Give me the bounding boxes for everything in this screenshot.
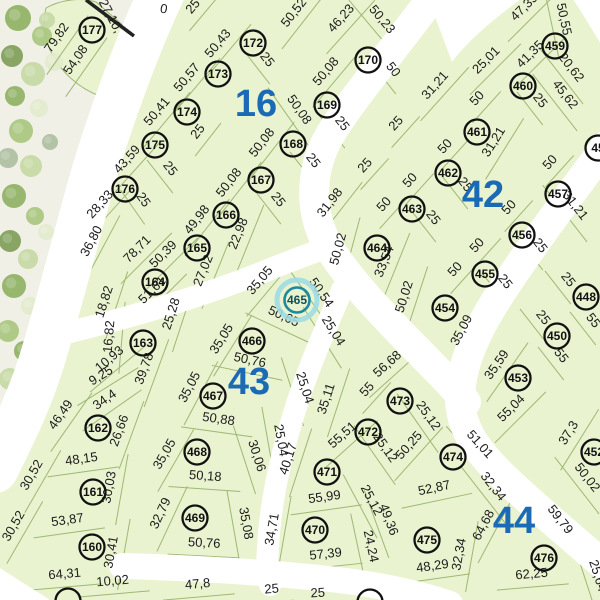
dimension-label: 50,18 [189,467,223,484]
parcel-number: 459 [545,39,565,53]
parcel-number: 462 [438,166,458,180]
tree-highlight-icon [41,14,48,21]
parcel-number: 163 [133,336,153,350]
tree-highlight-icon [4,48,14,58]
tree-highlight-icon [40,226,47,233]
dimension-label: 10,02 [96,572,130,590]
parcel-number: 468 [187,445,207,459]
tree-highlight-icon [1,151,10,160]
block-number-43: 43 [228,361,270,403]
parcel-number: 169 [317,98,337,112]
tree-highlight-icon [24,300,32,308]
tree-highlight-icon [6,188,17,199]
block-number-16: 16 [235,83,277,125]
parcel-number: 172 [243,36,263,50]
parcel-number: 165 [187,241,207,255]
tree-highlight-icon [9,9,21,21]
tree-highlight-icon [8,89,17,98]
parcel-number: 474 [443,450,463,464]
parcel-number: 453 [508,371,528,385]
parcel-number: 466 [242,334,262,348]
parcel-number: 450 [547,329,567,343]
tree-highlight-icon [2,233,12,243]
parcel-number: 469 [185,511,205,525]
tree-highlight-icon [44,136,51,143]
parcel-number: 471 [317,465,337,479]
parcel-number: 175 [145,138,165,152]
dimension-label: 25 [310,585,325,600]
parcel-number: 467 [203,389,223,403]
parcel-number: 45 [591,141,600,155]
parcel-number: 456 [512,228,532,242]
parcel-number: 176 [115,182,135,196]
block-number-42: 42 [462,174,504,216]
parcel-number: 166 [216,208,236,222]
tree-highlight-icon [13,123,24,134]
parcel-number: 160 [82,540,102,554]
dimension-label: 47,8 [184,575,211,592]
block-number-44: 44 [493,500,535,542]
parcel-number: 164 [145,275,165,289]
dimension-label: 50,76 [188,534,221,551]
dimension-label: 25 [264,580,280,596]
plat-map-viewport: 27,10,079,8254,082550,5246,2350,2350,432… [0,0,600,600]
tree-highlight-icon [6,278,17,289]
parcel-number: 168 [283,137,303,151]
tree-highlight-icon [2,371,12,381]
dimension-label: 62,25 [515,565,549,583]
parcel-number: 173 [208,67,228,81]
parcel-number: 174 [177,105,197,119]
tree-highlight-icon [0,323,10,333]
parcel-number: 461 [467,125,487,139]
parcel-number: 177 [82,23,102,37]
tree-highlight-icon [23,158,33,168]
tree-highlight-icon [25,66,36,77]
parcel-number: 465 [287,293,307,307]
parcel-number: 475 [417,533,437,547]
parcel-number: 464 [367,241,387,255]
parcel-number: 170 [358,53,378,67]
parcel-number: 448 [576,290,596,304]
plat-map: 27,10,079,8254,082550,5246,2350,2350,432… [0,0,600,600]
parcel-number: 476 [534,551,554,565]
parcel-number: 162 [88,421,108,435]
parcel-number: 473 [390,394,410,408]
dimension-label: 64,31 [48,565,82,583]
parcel-number: 161 [83,485,103,499]
parcel-number: 454 [435,301,455,315]
tree-highlight-icon [29,210,37,218]
parcel-number: 463 [402,202,422,216]
tree-highlight-icon [35,29,44,38]
tree-highlight-icon [33,102,41,110]
tree-highlight-icon [21,252,30,261]
parcel-number: 472 [358,425,378,439]
parcel-number: 470 [305,523,325,537]
parcel-number: 452 [584,445,600,459]
parcel-number: 455 [475,267,495,281]
parcel-number: 460 [513,79,533,93]
parcel-number: 457 [548,187,568,201]
parcel-number: 167 [251,173,271,187]
